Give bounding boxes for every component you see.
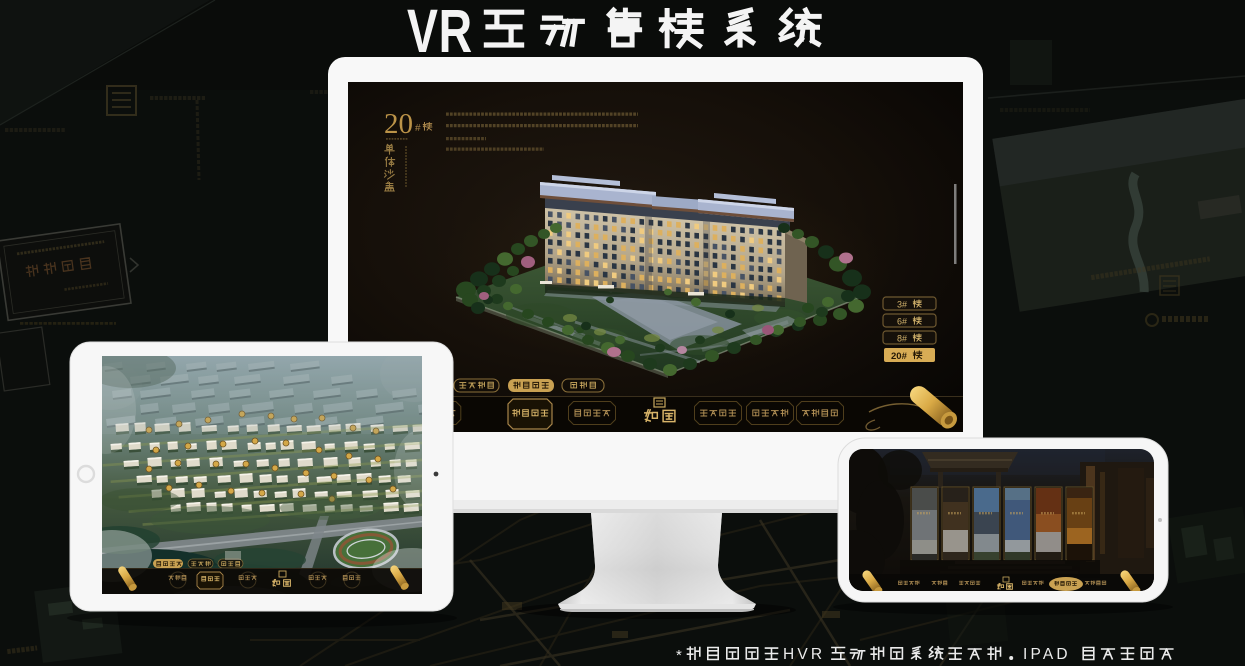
svg-text:8#: 8# bbox=[897, 334, 907, 344]
svg-text:3#: 3# bbox=[897, 300, 907, 310]
svg-text:HVR: HVR bbox=[783, 646, 825, 663]
svg-text:6#: 6# bbox=[897, 317, 907, 327]
svg-text:20#: 20# bbox=[891, 351, 908, 362]
svg-text:*: * bbox=[676, 647, 682, 664]
svg-text:20: 20 bbox=[384, 108, 413, 140]
svg-text:VR: VR bbox=[407, 0, 473, 66]
svg-text:#: # bbox=[415, 123, 421, 134]
svg-text:IPAD: IPAD bbox=[1023, 646, 1071, 663]
